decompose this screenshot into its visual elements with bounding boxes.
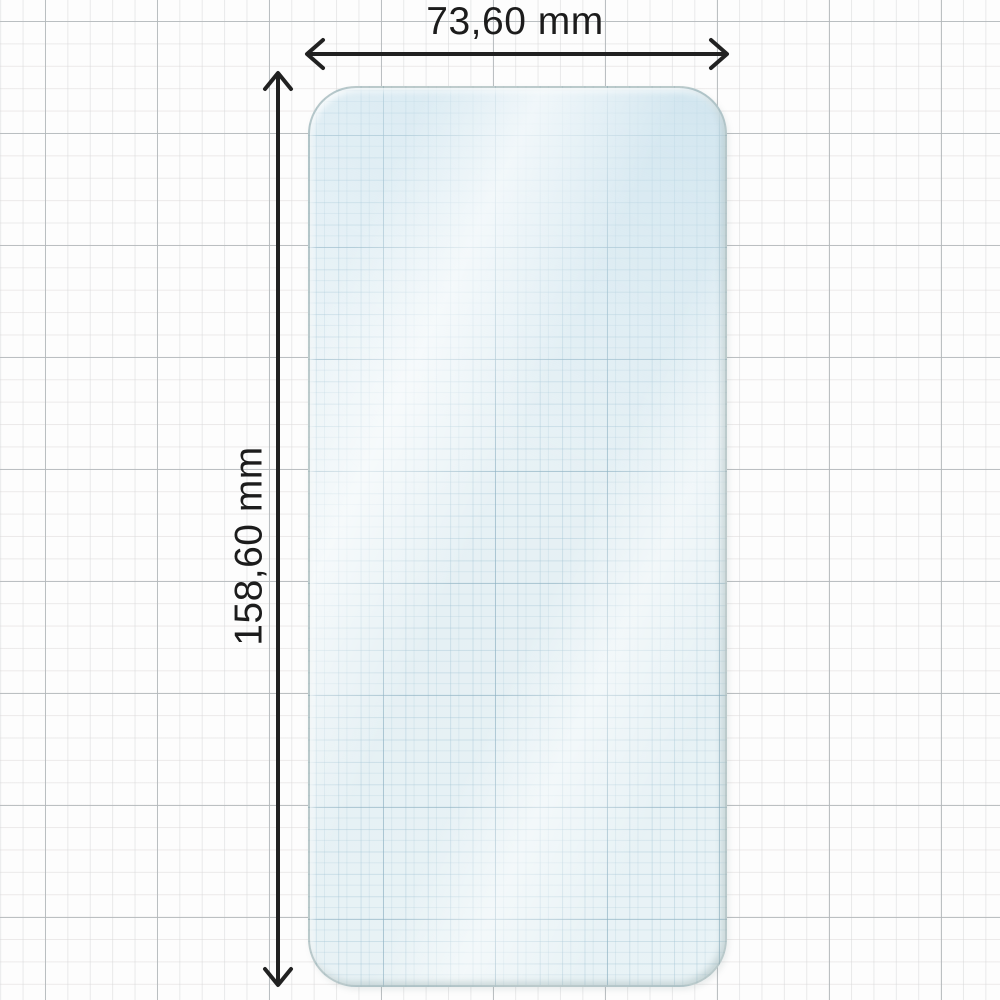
- screen-protector-glass: [308, 86, 727, 987]
- diagram-canvas: 73,60 mm 158,60 mm: [0, 0, 1000, 1000]
- width-dimension-arrow-icon: [307, 40, 727, 68]
- height-dimension-label: 158,60 mm: [230, 446, 269, 646]
- width-dimension-label: 73,60 mm: [426, 2, 603, 41]
